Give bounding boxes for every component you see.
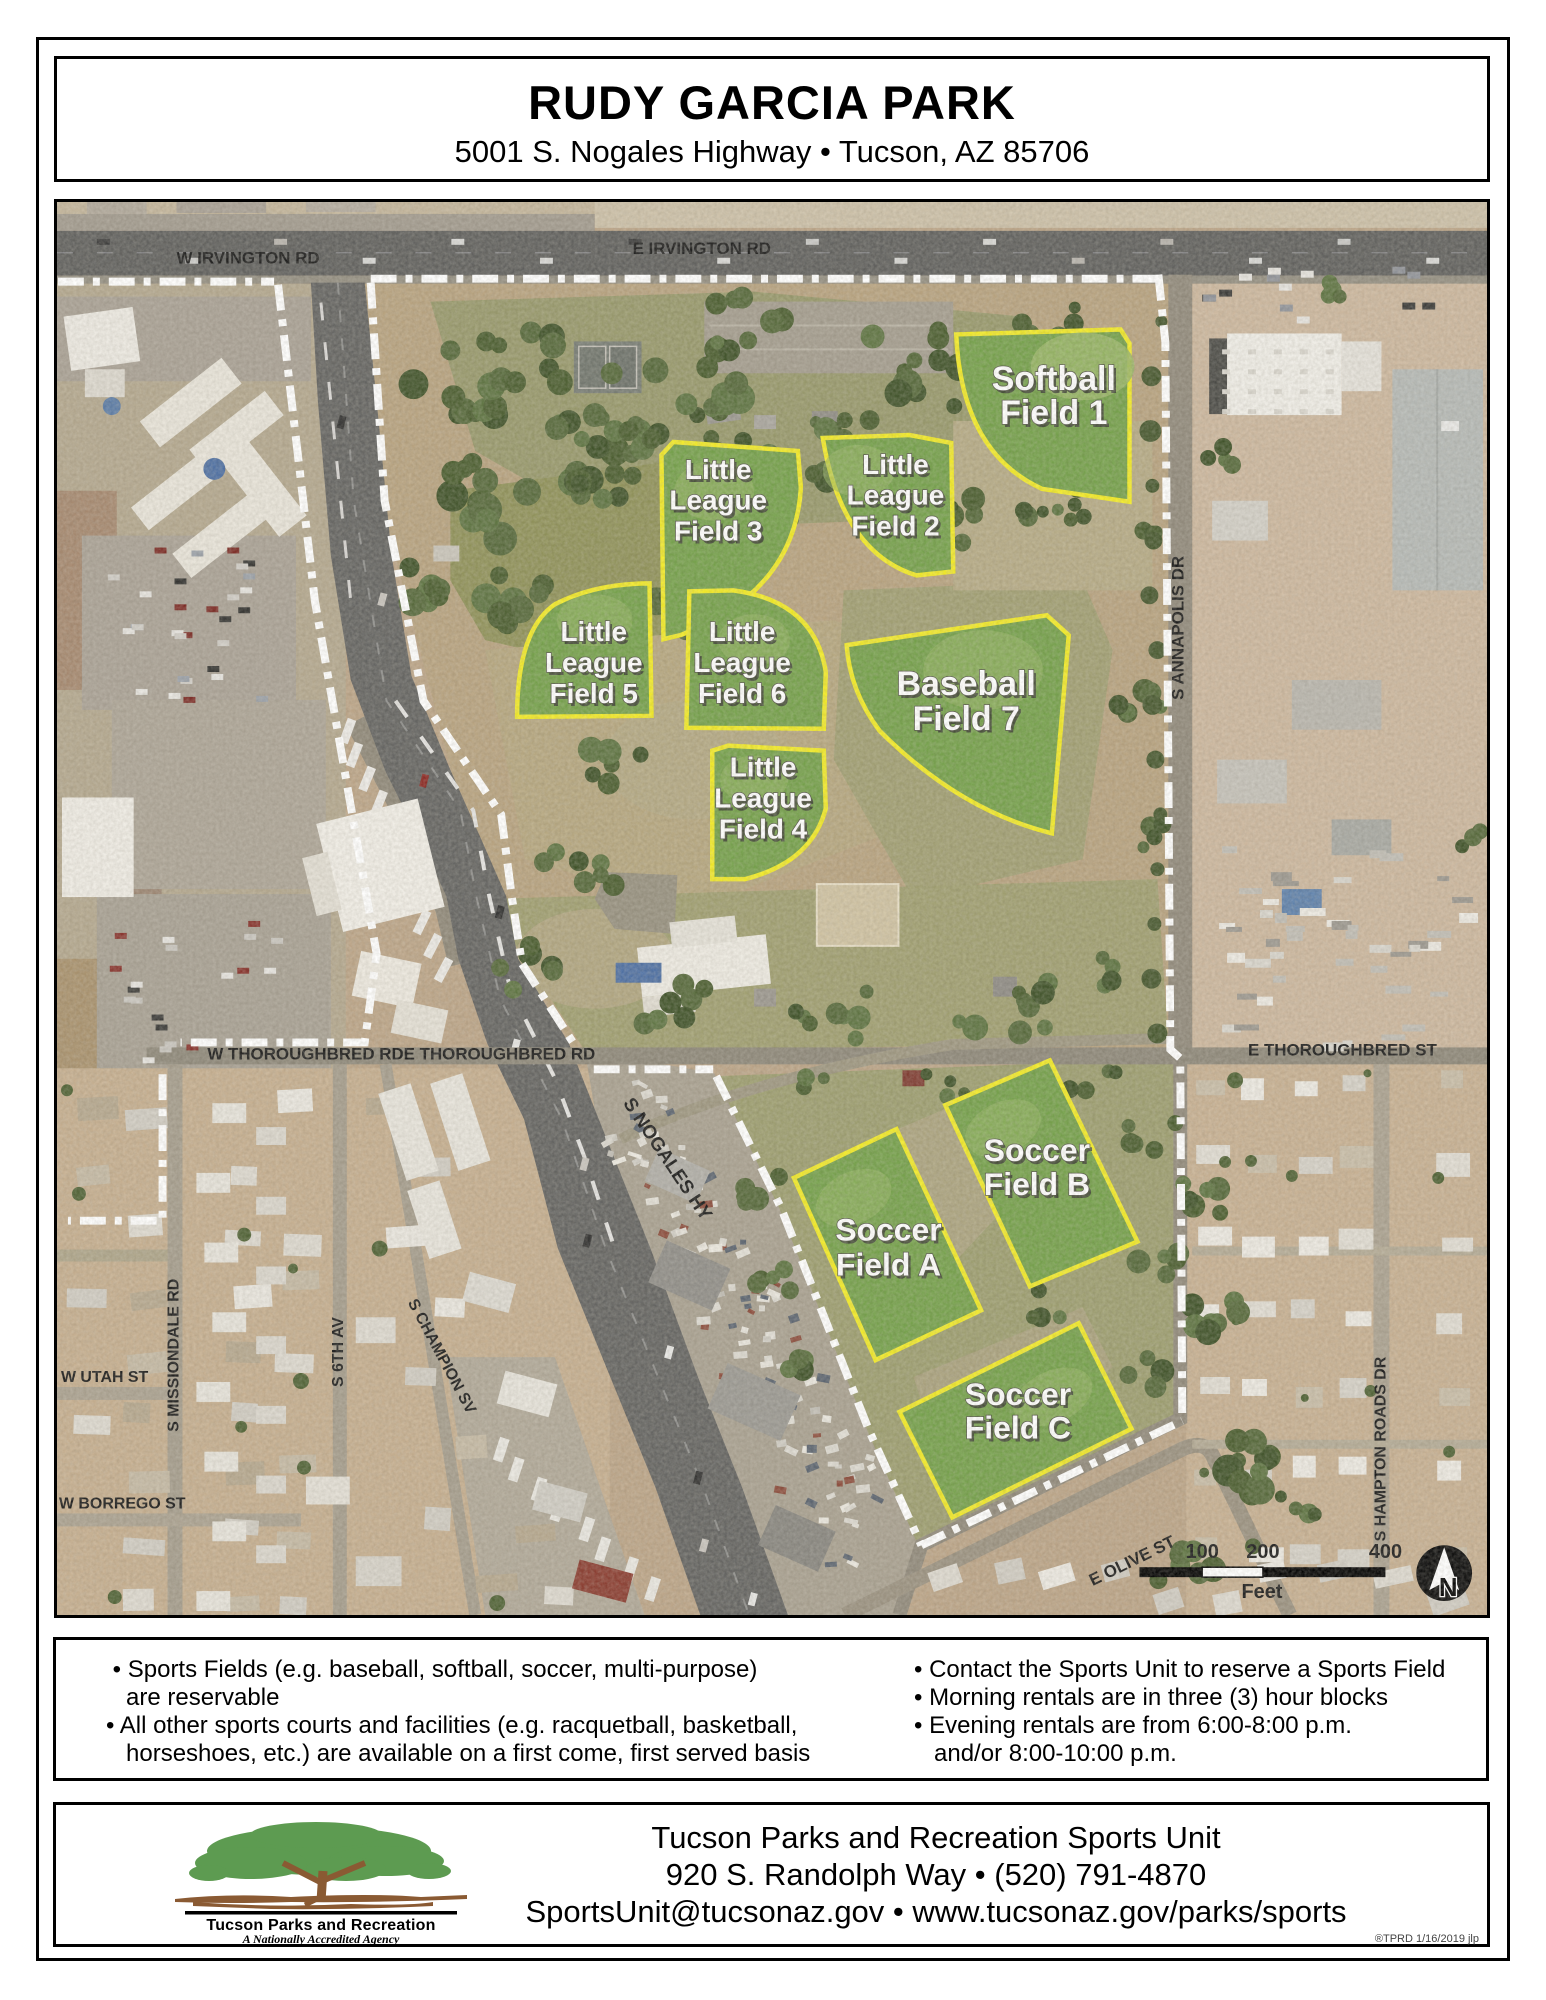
svg-text:A Nationally Accredited Agency: A Nationally Accredited Agency: [242, 1932, 400, 1946]
